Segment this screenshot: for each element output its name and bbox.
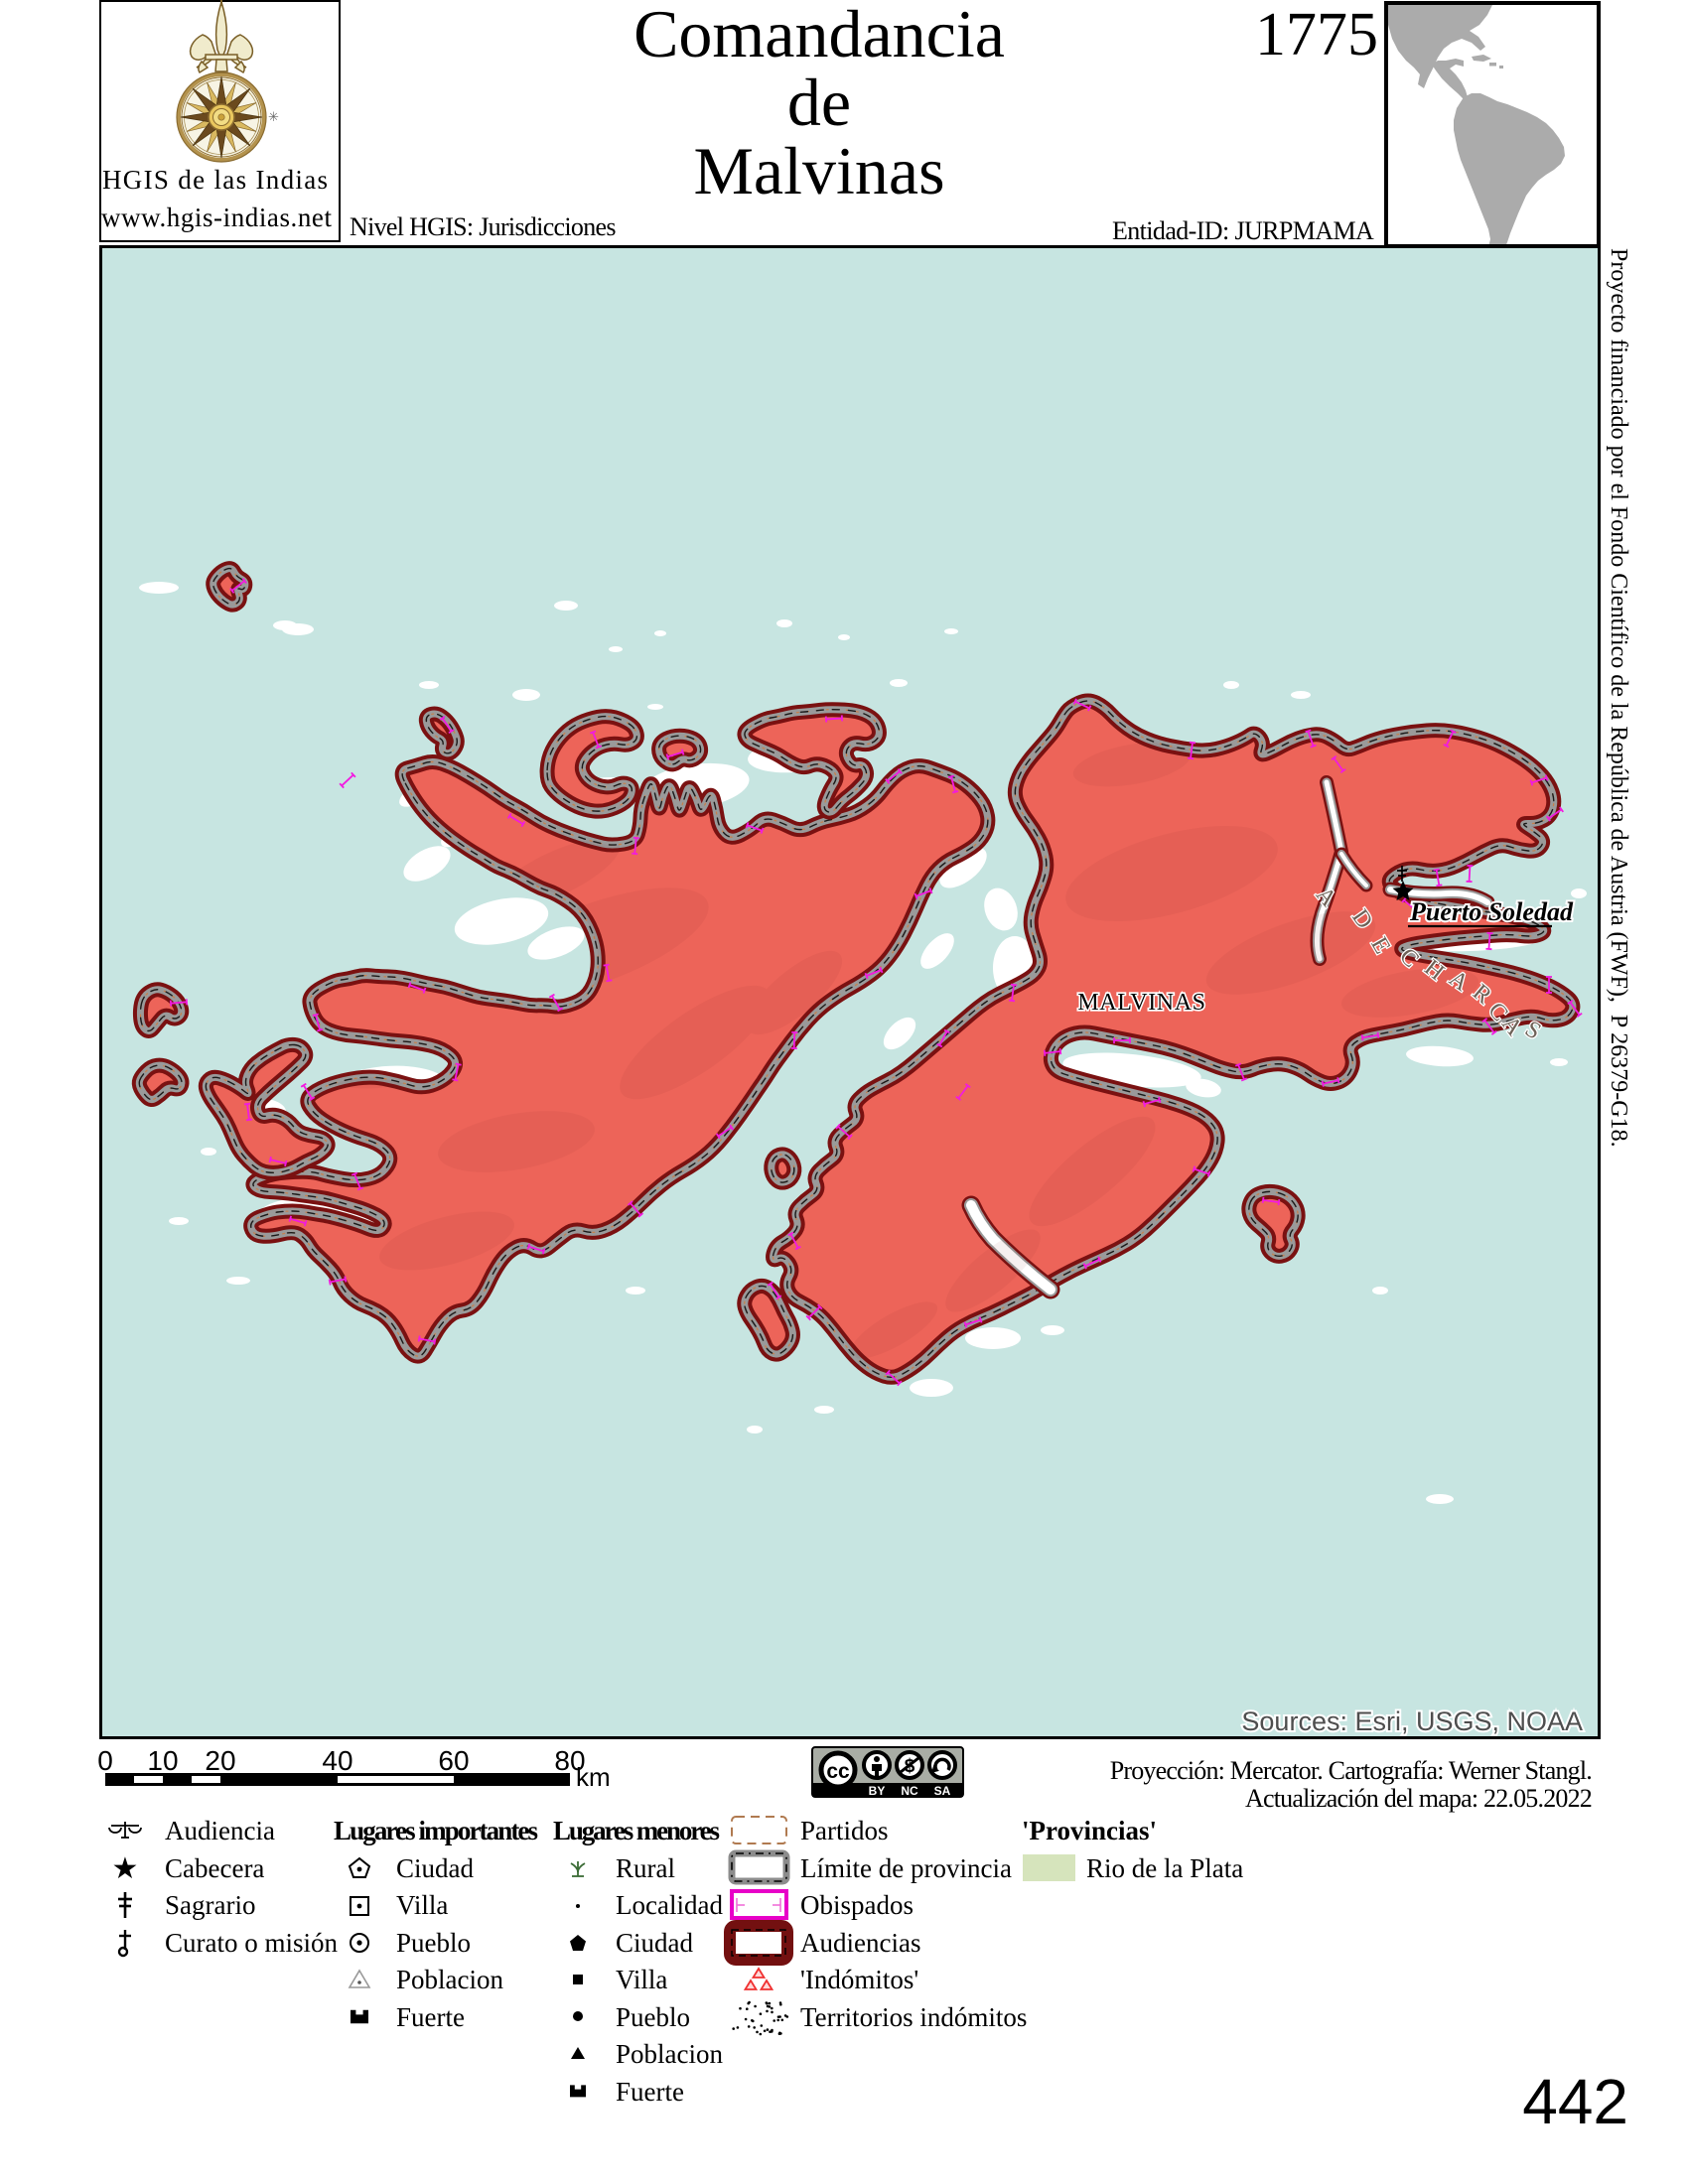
svg-text:Ciudad: Ciudad (616, 1928, 693, 1958)
svg-text:Localidad: Localidad (616, 1890, 723, 1920)
svg-text:Partidos: Partidos (800, 1816, 889, 1845)
svg-text:Límite de provincia: Límite de provincia (800, 1853, 1012, 1883)
svg-text:cc: cc (826, 1760, 850, 1783)
svg-text:✳: ✳ (268, 109, 279, 124)
svg-text:www.hgis-indias.net: www.hgis-indias.net (101, 203, 332, 232)
svg-text:10: 10 (147, 1745, 178, 1776)
svg-text:Ciudad: Ciudad (396, 1853, 474, 1883)
svg-text:Audiencia: Audiencia (165, 1816, 275, 1845)
svg-text:Villa: Villa (396, 1890, 448, 1920)
svg-text:Lugares importantes: Lugares importantes (334, 1816, 538, 1845)
svg-text:BY: BY (869, 1784, 886, 1798)
svg-text:Territorios indómitos: Territorios indómitos (800, 2002, 1027, 2032)
svg-text:Fuerte: Fuerte (616, 2077, 684, 2107)
svg-text:'Provincias': 'Provincias' (1022, 1816, 1157, 1845)
svg-text:Lugares menores: Lugares menores (553, 1816, 720, 1845)
svg-text:Rio de la Plata: Rio de la Plata (1086, 1853, 1243, 1883)
svg-text:'Indómitos': 'Indómitos' (800, 1965, 918, 1994)
svg-text:60: 60 (438, 1745, 469, 1776)
svg-text:km: km (576, 1762, 611, 1792)
svg-text:Sagrario: Sagrario (165, 1890, 255, 1920)
svg-text:Pueblo: Pueblo (616, 2002, 690, 2032)
svg-text:0: 0 (97, 1745, 113, 1776)
svg-text:Poblacion: Poblacion (616, 2039, 723, 2069)
svg-text:Rural: Rural (616, 1853, 675, 1883)
svg-text:Villa: Villa (616, 1965, 667, 1994)
svg-text:HGIS de las Indias: HGIS de las Indias (102, 165, 328, 195)
svg-text:Sources: Esri, USGS, NOAA: Sources: Esri, USGS, NOAA (1241, 1706, 1583, 1736)
svg-text:★: ★ (112, 1852, 139, 1885)
svg-text:40: 40 (322, 1745, 352, 1776)
svg-text:Fuerte: Fuerte (396, 2002, 465, 2032)
svg-text:20: 20 (205, 1745, 235, 1776)
svg-text:Obispados: Obispados (800, 1890, 914, 1920)
svg-text:MALVINAS: MALVINAS (1077, 990, 1205, 1016)
svg-text:Puerto Soledad: Puerto Soledad (1409, 897, 1574, 926)
svg-text:Pueblo: Pueblo (396, 1928, 471, 1958)
svg-text:Poblacion: Poblacion (396, 1965, 503, 1994)
svg-text:Audiencias: Audiencias (800, 1928, 920, 1958)
svg-text:Curato o misión: Curato o misión (165, 1928, 338, 1958)
svg-text:Cabecera: Cabecera (165, 1853, 264, 1883)
